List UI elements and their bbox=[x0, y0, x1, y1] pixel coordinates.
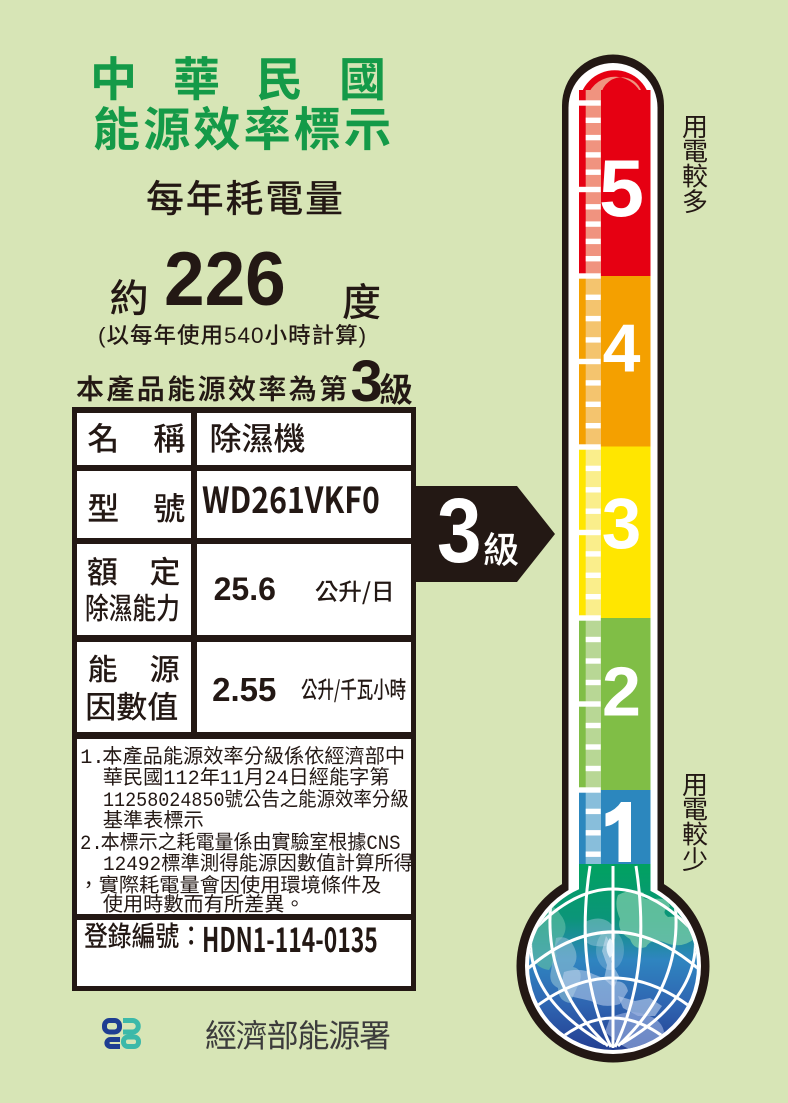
svg-text:4: 4 bbox=[603, 311, 641, 387]
svg-text:5: 5 bbox=[599, 144, 644, 234]
svg-text:3: 3 bbox=[602, 485, 642, 564]
svg-text:2: 2 bbox=[602, 653, 641, 731]
